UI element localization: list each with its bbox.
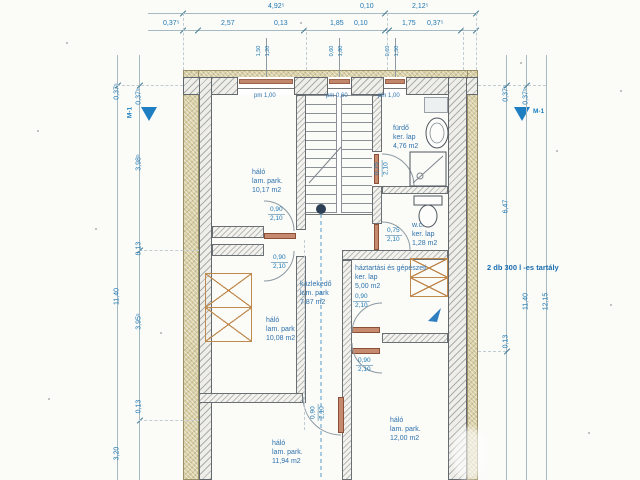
room-area: 12,00 m2: [390, 434, 421, 443]
room-name: közlekedő: [300, 280, 342, 289]
room-area: 5,00 m2: [355, 282, 450, 291]
north-arrow-icon: [428, 308, 441, 322]
sink: [426, 118, 448, 148]
dim-label: 6,47: [503, 190, 510, 224]
door-size-bedroom-bl: 0,90 2,10: [310, 404, 327, 421]
extension-line: [463, 27, 464, 70]
door-height: 2,10: [270, 215, 283, 222]
window-parapet-label: pm 0,60: [326, 93, 348, 99]
extension-line: [476, 13, 477, 70]
extension-line: [304, 240, 305, 430]
window-parapet-label: pm 1,00: [378, 93, 400, 99]
room-name: háló: [390, 416, 421, 425]
window-size-label: 1,50: [394, 39, 400, 63]
dim-label: 12,15: [543, 285, 550, 319]
room-label-bath: fürdő ker. lap 4,76 m2: [393, 124, 418, 151]
door-size-wc: 0,75 2,10: [385, 227, 402, 244]
window-size-label: 1,80: [338, 39, 344, 63]
room-name: háztartási és gépészeti: [355, 264, 450, 273]
dim-label: 0,37⁵: [427, 20, 444, 27]
dim-label: 3,98⁵: [136, 146, 143, 180]
room-floor: lam. park: [300, 289, 342, 298]
dim-label: 4,92⁵: [268, 3, 285, 10]
dim-label: 1,85: [330, 20, 344, 27]
shower-drain: [417, 173, 423, 179]
room-name: fürdő: [393, 124, 418, 133]
window-size-label: 0,60: [329, 39, 335, 63]
dim-label: 11,40: [523, 285, 530, 319]
extension-line: [139, 420, 199, 421]
dim-label: 0,37⁵: [114, 75, 121, 109]
dim-label: 2,57: [221, 20, 235, 27]
room-floor: ker. lap: [412, 230, 437, 239]
room-name: háló: [272, 439, 303, 448]
dim-label: 2,12⁵: [412, 3, 429, 10]
shower-diagonal: [413, 156, 443, 183]
dim-label: 3,20: [114, 437, 121, 471]
dim-label: 0,37⁵: [163, 20, 180, 27]
extension-line: [306, 27, 307, 70]
tank-annotation: 2 db 300 l -es tartály: [487, 263, 559, 272]
window-size-label: 1,50: [256, 39, 262, 63]
door-width: 0,75: [374, 160, 383, 177]
stair-break-line: [309, 147, 341, 183]
dim-label: 1,75: [402, 20, 416, 27]
room-label-utility: háztartási és gépészeti ker. lap 5,00 m2: [355, 264, 450, 291]
dim-line-left-a: [117, 55, 118, 480]
door-width: 0,90: [356, 357, 373, 366]
extension-line: [387, 13, 388, 70]
door-width: 0,90: [268, 206, 285, 215]
window-parapet-label: pm 1,00: [254, 93, 276, 99]
room-name: w.c.: [412, 221, 437, 230]
dim-label: 0,37⁵: [503, 77, 510, 111]
door-size-utility: 0,90 2,10: [353, 293, 370, 310]
dim-label: 0,13: [274, 20, 288, 27]
room-area: 10,08 m2: [266, 334, 295, 343]
extension-line: [183, 13, 184, 70]
room-floor: ker. lap: [355, 273, 450, 282]
dim-label: 0,13: [136, 390, 143, 424]
door-width: 0,90: [310, 404, 319, 421]
section-line-node: [316, 204, 326, 214]
door-width: 0,90: [353, 293, 370, 302]
floor-plan-canvas: háló lam. park. 10,17 m2 fürdő ker. lap …: [0, 0, 640, 480]
room-label-bedroom-br: háló lam. park. 12,00 m2: [390, 416, 421, 443]
room-floor: lam. park: [266, 325, 295, 334]
room-label-wc: w.c. ker. lap 1,28 m2: [412, 221, 437, 248]
dim-label: 0,10: [354, 20, 368, 27]
door-size-bedroom-br: 0,90 2,10: [356, 357, 373, 374]
window-size-label: 0,60: [385, 39, 391, 63]
section-marker-label-right: M-1: [533, 108, 544, 115]
door-size-bath: 0,75 2,10: [374, 160, 391, 177]
door-height: 2,10: [358, 366, 371, 373]
dim-label: 3,95⁵: [136, 305, 143, 339]
room-label-bedroom1: háló lam. park. 10,17 m2: [252, 168, 283, 195]
door-height: 2,10: [383, 162, 390, 175]
room-area: 11,94 m2: [272, 457, 303, 466]
dim-label: 0,13: [503, 325, 510, 359]
toilet-tank: [414, 196, 442, 205]
door-width: 0,90: [271, 254, 288, 263]
room-label-bedroom2: háló lam. park 10,08 m2: [266, 316, 295, 343]
room-area: 10,17 m2: [252, 186, 283, 195]
room-floor: lam. park.: [390, 425, 421, 434]
scan-watermark-blot: [452, 428, 486, 480]
dim-label: 0,37⁵: [523, 80, 530, 114]
room-name: háló: [266, 316, 295, 325]
extension-line: [117, 85, 183, 86]
door-size-room2: 0,90 2,10: [271, 254, 288, 271]
room-area: 1,28 m2: [412, 239, 437, 248]
door-height: 2,10: [319, 406, 326, 419]
extension-line: [139, 250, 199, 251]
extension-line: [478, 85, 546, 86]
dim-line-top-1: [148, 13, 478, 14]
door-height: 2,10: [387, 236, 400, 243]
dim-label: 0,37⁵: [136, 80, 143, 114]
door-height: 2,10: [273, 263, 286, 270]
door-size-room1: 0,90 2,10: [268, 206, 285, 223]
room-name: háló: [252, 168, 283, 177]
door-height: 2,10: [355, 302, 368, 309]
room-label-bedroom-bl: háló lam. park. 11,94 m2: [272, 439, 303, 466]
dim-label: 11,40: [114, 280, 121, 314]
room-floor: lam. park.: [252, 177, 283, 186]
room-area: 7,87 m2: [300, 298, 342, 307]
dim-label: 0,10: [360, 3, 374, 10]
room-floor: lam. park.: [272, 448, 303, 457]
section-marker-triangle-left: [141, 107, 157, 121]
room-area: 4,76 m2: [393, 142, 418, 151]
door-width: 0,75: [385, 227, 402, 236]
dim-label: 0,13: [136, 232, 143, 266]
room-label-corridor: közlekedő lam. park 7,87 m2: [300, 280, 342, 307]
window-size-label: 1,20: [265, 39, 271, 63]
room-floor: ker. lap: [393, 133, 418, 142]
section-marker-label-left: M-1: [127, 96, 134, 130]
